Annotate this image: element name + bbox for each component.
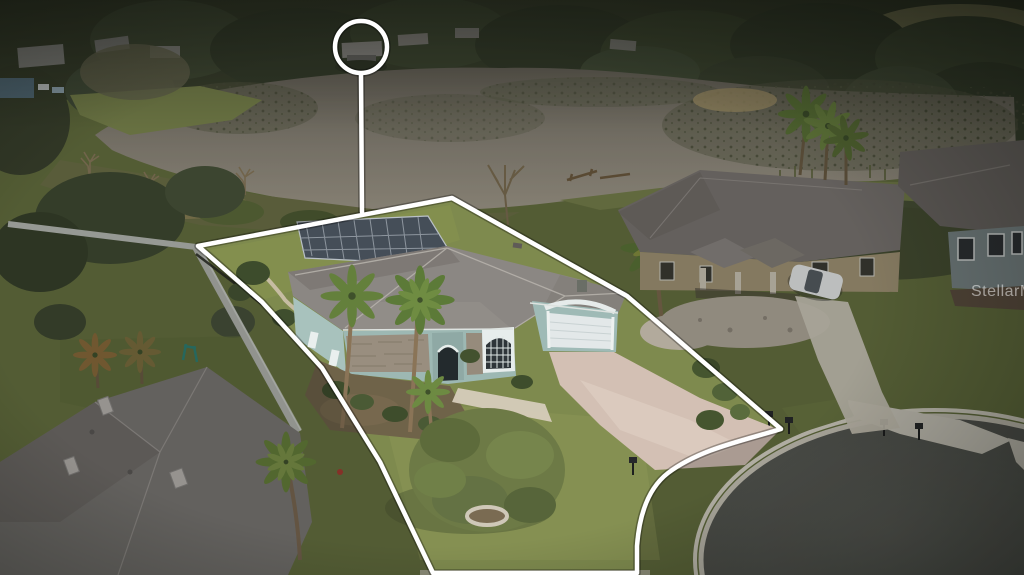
aerial-photo: StellarMLS <box>0 0 1024 575</box>
aerial-photo-page: StellarMLS <box>0 0 1024 575</box>
watermark-text: StellarMLS <box>971 283 1024 300</box>
dimming <box>0 0 1024 575</box>
pointer-line <box>361 74 362 212</box>
